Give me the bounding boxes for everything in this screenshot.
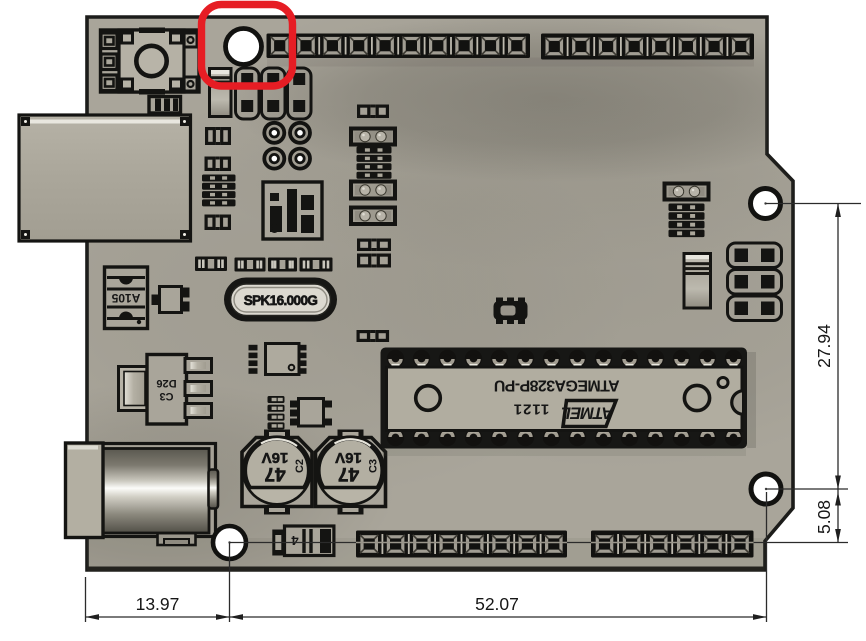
- svg-text:16V: 16V: [335, 449, 362, 466]
- svg-text:SPK16.000G: SPK16.000G: [244, 293, 318, 308]
- svg-text:5.08: 5.08: [814, 500, 834, 534]
- svg-text:1121: 1121: [513, 401, 550, 418]
- svg-text:27.94: 27.94: [814, 324, 834, 368]
- svg-text:52.07: 52.07: [475, 594, 519, 614]
- svg-text:C3: C3: [159, 390, 173, 402]
- svg-text:A105: A105: [111, 291, 140, 305]
- svg-text:C2: C2: [294, 459, 306, 473]
- svg-text:4: 4: [291, 533, 299, 548]
- svg-text:D26: D26: [156, 377, 176, 389]
- svg-text:ATMEGA328P-PU: ATMEGA328P-PU: [494, 377, 619, 394]
- svg-text:C3: C3: [368, 459, 380, 473]
- svg-text:16V: 16V: [262, 449, 289, 466]
- svg-text:ATMEL: ATMEL: [561, 404, 614, 422]
- svg-text:13.97: 13.97: [136, 594, 180, 614]
